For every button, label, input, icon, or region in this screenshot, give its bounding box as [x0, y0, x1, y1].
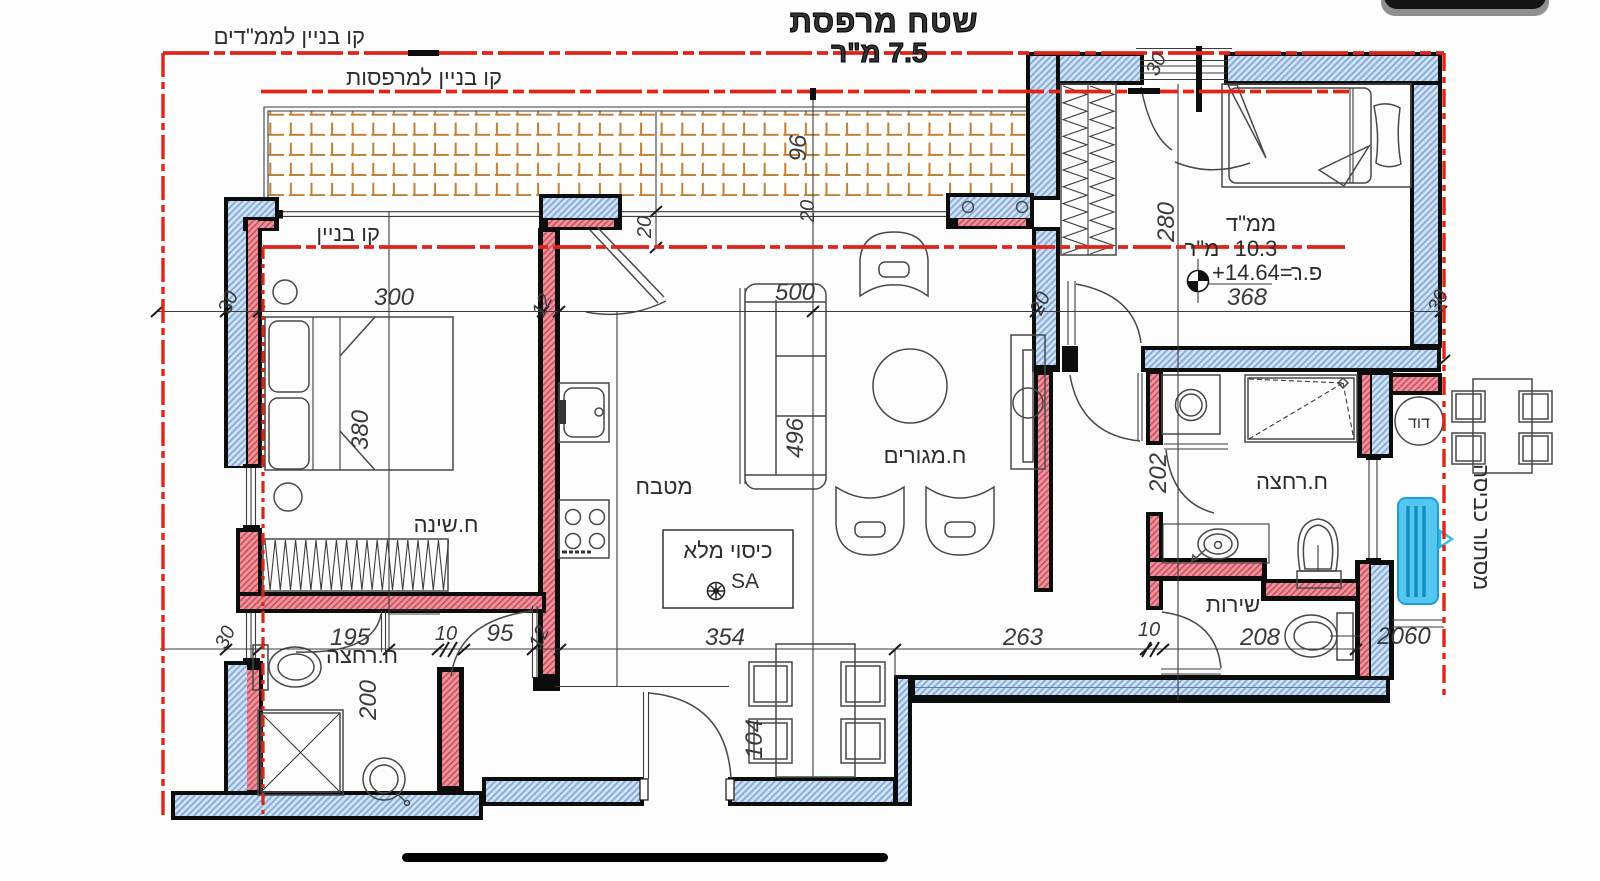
- svg-text:מסתור כביסה: מסתור כביסה: [1469, 464, 1494, 590]
- svg-text:10.3: 10.3: [1235, 236, 1278, 261]
- svg-text:95: 95: [487, 620, 514, 647]
- svg-text:כיסוי מלא: כיסוי מלא: [683, 538, 772, 563]
- svg-text:96: 96: [785, 134, 812, 161]
- svg-text:ח.מגורים: ח.מגורים: [884, 443, 967, 468]
- svg-text:500: 500: [775, 279, 816, 306]
- svg-text:קו בניין: קו בניין: [316, 221, 380, 246]
- svg-text:200: 200: [355, 679, 382, 721]
- svg-text:20: 20: [634, 216, 656, 239]
- svg-text:מטבח: מטבח: [635, 474, 692, 499]
- svg-text:+14.64=.: +14.64=.: [1212, 260, 1299, 285]
- svg-text:שירות: שירות: [1206, 592, 1260, 617]
- svg-text:2060: 2060: [1376, 623, 1431, 650]
- svg-text:מ"ר: מ"ר: [831, 37, 881, 68]
- svg-text:104: 104: [741, 719, 768, 759]
- svg-text:380: 380: [347, 409, 374, 450]
- svg-text:ח.רחצה: ח.רחצה: [1256, 469, 1328, 494]
- svg-text:496: 496: [782, 417, 809, 458]
- svg-text:195: 195: [330, 624, 371, 651]
- svg-text:קו בניין למרפסות: קו בניין למרפסות: [346, 65, 502, 90]
- svg-text:300: 300: [374, 284, 415, 311]
- svg-text:263: 263: [1002, 624, 1044, 651]
- svg-text:דוד: דוד: [1408, 415, 1430, 432]
- svg-text:368: 368: [1227, 284, 1268, 311]
- svg-text:10: 10: [1138, 619, 1160, 641]
- svg-text:פ.ר: פ.ר: [1291, 260, 1322, 285]
- svg-text:354: 354: [705, 624, 745, 651]
- svg-text:SA: SA: [731, 570, 759, 593]
- svg-text:280: 280: [1153, 201, 1180, 243]
- svg-text:20: 20: [797, 200, 819, 223]
- svg-text:202: 202: [1145, 453, 1172, 494]
- svg-text:ח.שינה: ח.שינה: [414, 512, 479, 537]
- svg-text:שטח מרפסת: שטח מרפסת: [790, 4, 979, 39]
- svg-text:קו בניין לממ"דים: קו בניין לממ"דים: [214, 24, 365, 49]
- svg-text:208: 208: [1239, 624, 1281, 651]
- svg-text:מ"ר: מ"ר: [1185, 236, 1220, 261]
- svg-text:10: 10: [435, 623, 457, 645]
- svg-text:ממ"ד: ממ"ד: [1226, 211, 1276, 236]
- svg-text:7.5: 7.5: [889, 37, 928, 68]
